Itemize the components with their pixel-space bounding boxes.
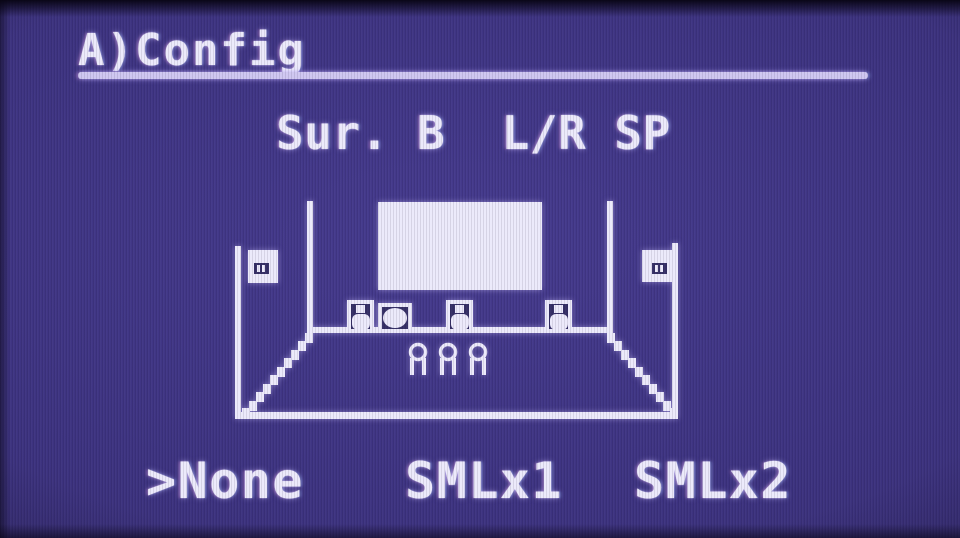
subwoofer-icon (378, 303, 412, 333)
listener-icon (440, 345, 456, 376)
surround-right-speaker-icon (642, 250, 672, 282)
osd-screen: A)Config Sur. B L/R SP (0, 0, 960, 538)
option-smlx1[interactable]: SMLx1 (405, 456, 563, 506)
listeners (410, 345, 486, 376)
center-speaker-icon (446, 300, 473, 333)
front-left-speaker-icon (347, 300, 374, 333)
surround-left-speaker-icon (248, 250, 278, 283)
option-smlx2[interactable]: SMLx2 (634, 456, 792, 506)
tv-screen-icon (378, 202, 542, 290)
listener-icon (470, 345, 486, 376)
option-none[interactable]: >None (146, 456, 304, 506)
front-right-speaker-icon (545, 300, 572, 333)
listener-icon (410, 345, 426, 376)
